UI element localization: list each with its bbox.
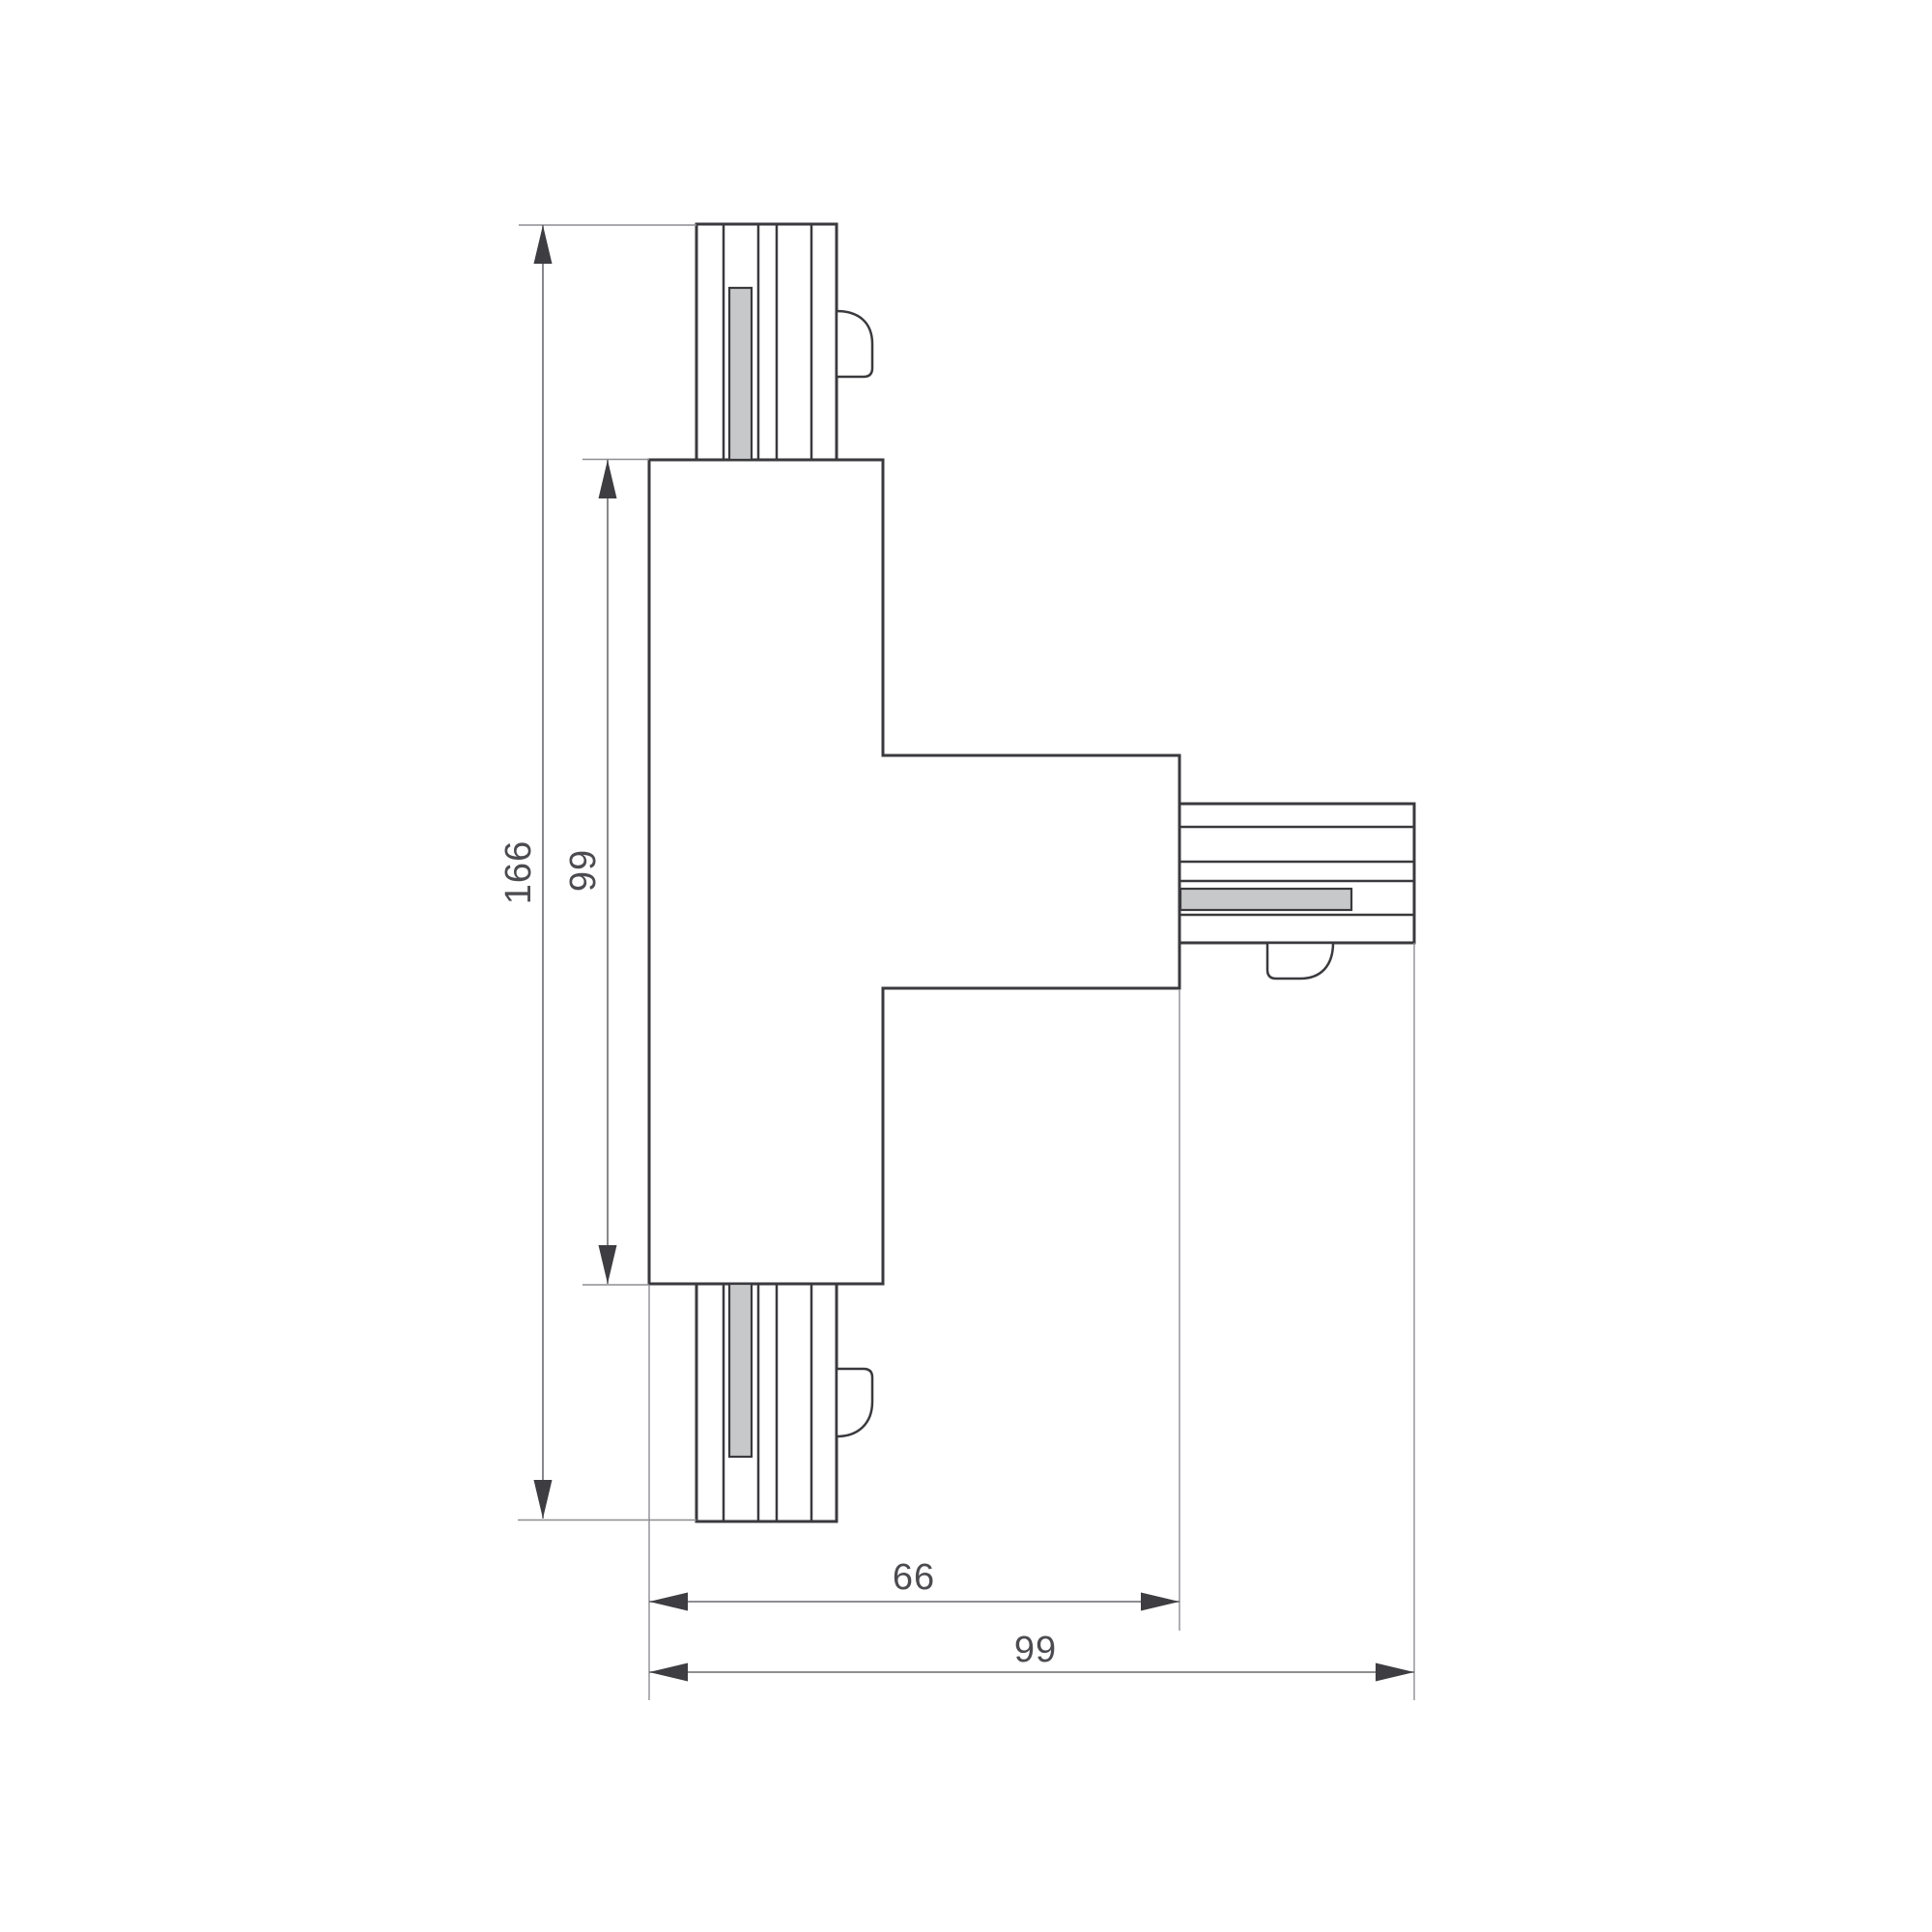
- connector-right-body: [1179, 804, 1414, 943]
- arrowhead-up: [534, 225, 553, 264]
- technical-drawing-canvas: 166 99 66: [0, 0, 1932, 1932]
- arrowhead-left: [649, 1593, 688, 1611]
- connector-top-contact-slot: [729, 288, 752, 460]
- arrowhead-right: [1376, 1663, 1414, 1682]
- dim-body-height: 99: [563, 460, 649, 1286]
- connector-bottom: [696, 1284, 872, 1521]
- arrowhead-down: [534, 1480, 553, 1519]
- connector-right: [1179, 804, 1414, 979]
- connector-top-body: [696, 224, 837, 460]
- t-connector-part: [649, 224, 1414, 1521]
- connector-top: [696, 224, 872, 460]
- connector-bottom-body: [696, 1284, 837, 1521]
- connector-right-latch: [1267, 943, 1333, 979]
- t-body-outline: [649, 460, 1179, 1284]
- connector-bottom-contact-slot: [729, 1284, 752, 1457]
- connector-top-latch: [837, 311, 872, 377]
- t-connector-drawing: 166 99 66: [0, 0, 1932, 1932]
- connector-bottom-latch: [837, 1369, 872, 1436]
- dim-label-overall-width: 99: [1014, 1630, 1057, 1670]
- dim-label-overall-height: 166: [498, 840, 539, 904]
- arrowhead-up: [599, 460, 617, 498]
- arrowhead-right: [1141, 1593, 1179, 1611]
- dim-label-body-height: 99: [563, 849, 604, 892]
- dim-label-branch-width: 66: [893, 1557, 935, 1598]
- arrowhead-down: [599, 1245, 617, 1284]
- arrowhead-left: [649, 1663, 688, 1682]
- connector-right-contact-slot: [1180, 889, 1351, 910]
